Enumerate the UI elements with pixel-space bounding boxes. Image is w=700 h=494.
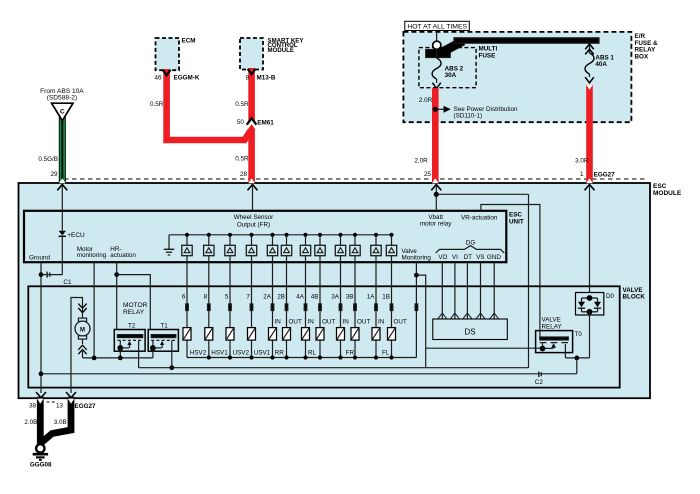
svg-text:OUT: OUT [322,318,335,325]
svg-text:MODULE: MODULE [268,47,294,54]
svg-text:VO: VO [438,254,447,261]
svg-text:4A: 4A [296,293,305,300]
svg-text:ESC: ESC [509,212,522,219]
svg-text:1B: 1B [382,293,390,300]
svg-text:monitoring: monitoring [77,252,107,259]
svg-text:3.0B: 3.0B [54,419,67,426]
svg-text:BOX: BOX [635,53,649,60]
svg-text:RELAY: RELAY [542,323,563,330]
svg-text:MODULE: MODULE [653,190,682,197]
svg-text:actuation: actuation [110,252,136,259]
svg-text:EGGM-K: EGGM-K [174,75,200,82]
svg-text:M13-B: M13-B [257,75,276,82]
svg-text:3B: 3B [346,293,354,300]
svg-text:USV2: USV2 [233,350,250,357]
svg-text:M: M [80,327,85,333]
svg-text:BLOCK: BLOCK [623,293,646,300]
svg-text:VR-actuation: VR-actuation [461,215,498,222]
svg-text:(SD110-1): (SD110-1) [454,112,483,119]
svg-text:50: 50 [237,119,245,126]
svg-text:EGG27: EGG27 [75,403,96,410]
svg-text:USV1: USV1 [254,350,271,357]
svg-text:HSV2: HSV2 [190,350,207,357]
svg-text:Output (FR): Output (FR) [237,222,270,229]
svg-text:C1: C1 [63,279,72,286]
svg-text:ECM: ECM [182,38,196,45]
svg-text:EGG27: EGG27 [594,171,615,178]
svg-text:28: 28 [240,171,248,178]
svg-text:FUSE: FUSE [479,52,496,59]
svg-text:6: 6 [182,293,186,300]
svg-text:T1: T1 [160,322,168,329]
svg-text:2A: 2A [263,293,272,300]
svg-text:Monitoring: Monitoring [402,254,432,261]
svg-text:30A: 30A [445,72,457,79]
svg-text:5: 5 [225,293,229,300]
svg-text:0.5R: 0.5R [235,156,249,163]
svg-text:0.5G/B: 0.5G/B [38,156,58,163]
svg-text:Wheel Sensor: Wheel Sensor [234,214,274,221]
svg-text:IN: IN [275,318,282,325]
svg-text:1: 1 [580,171,584,178]
svg-text:D0: D0 [606,293,615,300]
svg-text:HOT AT ALL TIMES: HOT AT ALL TIMES [407,24,467,31]
svg-text:(SD588-2): (SD588-2) [47,95,77,102]
svg-text:motor relay: motor relay [420,221,452,228]
svg-text:0.5R: 0.5R [235,101,249,108]
svg-text:0.5R: 0.5R [150,101,164,108]
svg-text:RL: RL [308,350,317,357]
svg-text:DS: DS [464,328,475,337]
svg-text:2.0R: 2.0R [419,97,433,104]
svg-text:3A: 3A [331,293,340,300]
svg-text:FL: FL [382,350,390,357]
svg-text:IN: IN [308,318,315,325]
svg-text:4B: 4B [311,293,319,300]
svg-text:T2: T2 [128,322,136,329]
svg-text:RELAY: RELAY [123,309,145,316]
svg-text:OUT: OUT [357,318,370,325]
svg-text:40A: 40A [595,61,607,68]
svg-text:3.0R: 3.0R [575,158,589,165]
svg-text:EM61: EM61 [257,119,274,126]
svg-text:FR: FR [346,350,355,357]
svg-text:46: 46 [154,75,162,82]
svg-text:IN: IN [378,318,385,325]
svg-text:2.0R: 2.0R [414,158,428,165]
svg-text:RR: RR [275,350,285,357]
svg-text:Ground: Ground [29,254,51,261]
svg-text:8: 8 [204,293,208,300]
svg-text:DT: DT [464,254,473,261]
svg-text:OUT: OUT [394,318,407,325]
svg-text:2.0B: 2.0B [24,419,37,426]
svg-text:2B: 2B [277,293,285,300]
svg-text:13: 13 [56,402,64,409]
svg-text:UNIT: UNIT [509,219,524,226]
svg-text:OUT: OUT [289,318,302,325]
svg-text:29: 29 [50,171,58,178]
svg-text:8: 8 [245,75,249,82]
svg-text:25: 25 [424,171,432,178]
svg-text:GGG08: GGG08 [30,461,52,468]
svg-text:VS: VS [476,254,484,261]
svg-text:IN: IN [343,318,350,325]
svg-text:+ECU: +ECU [67,232,85,239]
svg-text:C: C [60,109,65,116]
svg-text:1A: 1A [367,293,376,300]
svg-text:HSV1: HSV1 [211,350,228,357]
svg-text:C2: C2 [535,379,544,386]
svg-text:38: 38 [29,402,37,409]
svg-text:GND: GND [487,254,501,261]
svg-text:7: 7 [246,293,250,300]
svg-text:VI: VI [452,254,458,261]
svg-text:T0: T0 [575,331,583,338]
